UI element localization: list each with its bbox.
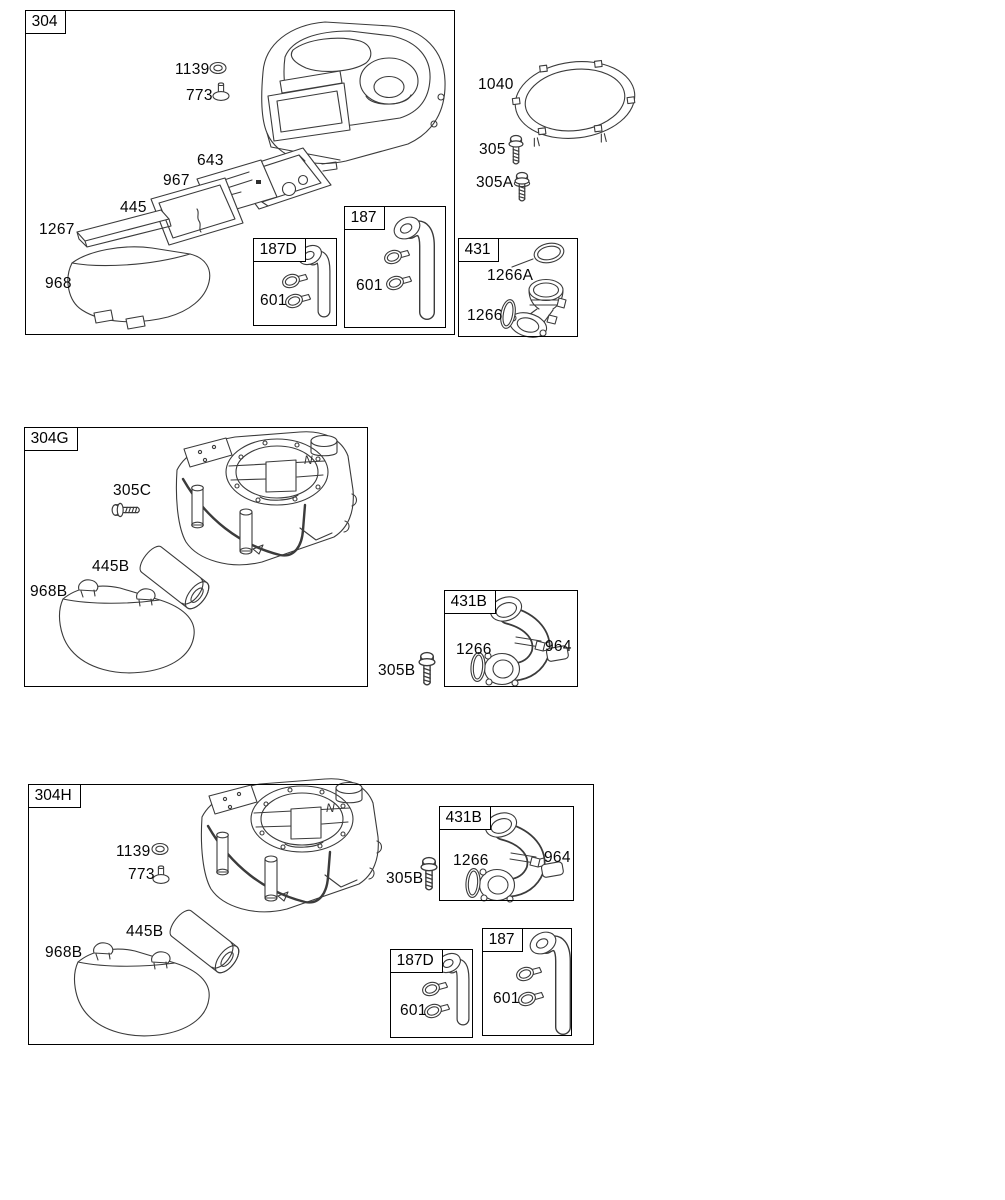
callout-445: 445 [120,199,147,218]
callout-601-187d-bot: 601 [400,1002,427,1021]
parts-diagram-page: N N 304 187D 187 431 304G 431B [0,0,1005,1200]
callout-601-187d-top: 601 [260,292,287,311]
panel-187d-bot-label: 187D [390,949,443,973]
panel-431-label: 431 [458,238,500,262]
callout-445b-mid: 445B [92,558,129,577]
callout-1266a: 1266A [487,267,533,286]
callout-305b-mid: 305B [378,662,415,681]
callout-305a: 305A [476,174,513,193]
panel-187-bot: 187 [482,928,572,1036]
callout-1266-431: 1266 [467,307,503,326]
callout-1266-431b-bot: 1266 [453,852,489,871]
callout-1267: 1267 [39,221,75,240]
callout-968: 968 [45,275,72,294]
screw-305b-mid-art [419,653,435,685]
callout-1139-bot: 1139 [116,843,151,862]
panel-304g: 304G [24,427,368,687]
panel-431b-mid-label: 431B [444,590,496,614]
callout-968b-mid: 968B [30,583,67,602]
callout-1139-top: 1139 [175,61,210,80]
panel-304g-label: 304G [24,427,78,451]
callout-1266-431b-mid: 1266 [456,641,492,660]
callout-773-top: 773 [186,87,213,106]
callout-968b-bot: 968B [45,944,82,963]
panel-187-top: 187 [344,206,446,328]
callout-305c: 305C [113,482,151,501]
callout-643: 643 [197,152,224,171]
callout-601-187-top: 601 [356,277,383,296]
callout-601-187-bot: 601 [493,990,520,1009]
panel-304-label: 304 [25,10,67,34]
panel-187-bot-label: 187 [482,928,524,952]
panel-187-top-label: 187 [344,206,386,230]
callout-964-bot: 964 [544,849,571,868]
callout-445b-bot: 445B [126,923,163,942]
panel-187d-top: 187D [253,238,337,326]
panel-304h-label: 304H [28,784,81,808]
panel-187d-bot: 187D [390,949,473,1038]
panel-431b-bot-label: 431B [439,806,491,830]
callout-1040: 1040 [478,76,514,95]
gasket-1040-art [509,55,640,152]
panel-187d-top-label: 187D [253,238,306,262]
callout-305: 305 [479,141,506,160]
callout-773-bot: 773 [128,866,155,885]
screw-305-art [509,135,523,163]
callout-305b-bot: 305B [386,870,423,889]
callout-967: 967 [163,172,190,191]
callout-964-mid: 964 [545,638,572,657]
